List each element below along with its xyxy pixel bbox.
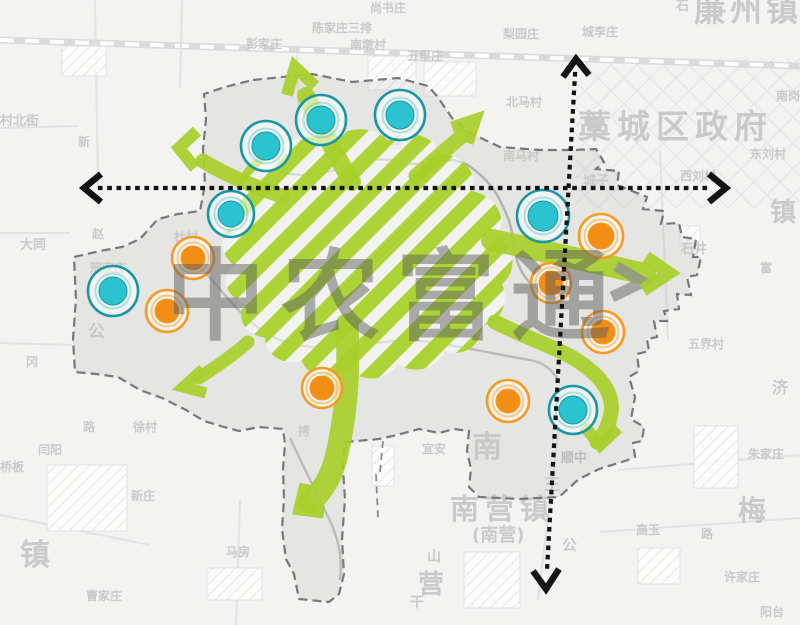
map-label: 新庄 [131,490,155,503]
map-label: 干 [410,596,424,611]
map-label: 五界村 [688,338,724,351]
map-label: 南岗 [776,90,800,103]
map-label: 阳台 [760,606,784,619]
map-label: 市民 [378,138,402,151]
map-label: 马房 [226,546,250,559]
map-label: 梅 [738,496,766,525]
map-label: 南墩村 [350,39,386,52]
map-label: (南营) [472,527,524,546]
map-label: 宜安 [422,443,446,456]
watermark: 中农富通 [166,248,626,347]
concept-plan-diagram: 藁城区政府廉州镇南营镇(南营)梅镇镇营南王济公公山干尚书庄陈家庄三排南墩村五里庄… [0,0,800,625]
map-label: 石井 [681,243,707,257]
map-label: 路 [83,421,95,434]
map-label: 桥板 [0,461,24,474]
map-label: 山 [427,550,441,565]
map-label: 王 [544,477,560,494]
map-label: 拷 [298,425,310,438]
map-label: 镇 [770,200,796,227]
map-label: 徐村 [133,421,157,434]
map-label: 五里庄 [407,50,443,63]
map-label: 朱家庄 [748,448,784,461]
map-label: 石 [676,0,689,14]
map-label: 闫阳 [38,444,62,457]
map-label: 公 [562,538,577,554]
map-label: 邢家庄 [90,262,126,275]
map-label: 镇 [20,540,50,572]
map-label: 尚书庄 [370,2,406,15]
map-label: 梨园庄 [503,28,539,41]
map-label: 顺中 [561,452,587,466]
map-label: 富 [760,262,772,275]
map-label: 彭家庄 [246,38,282,51]
map-label: 曹家庄 [86,590,122,603]
map-label: 济 [772,380,788,397]
map-label: 城李庄 [582,26,618,39]
map-label: 藁城区政府 [578,110,773,145]
map-label: 许家庄 [724,571,760,584]
map-label: 西刘村 [680,170,716,183]
map-label: 新 [78,136,90,149]
map-label: 南马村 [503,150,539,163]
map-label: 东刘村 [750,148,786,161]
map-label: 村北街 [0,115,39,129]
map-label: 城子 [583,175,609,189]
map-label: 南 [472,432,502,464]
map-label: 冈 [26,356,38,369]
map-label: 路 [701,528,713,541]
map-label: 廉州镇 [694,0,800,28]
map-label: 高玉 [636,524,660,537]
map-label: 南营镇 [450,494,555,524]
map-label: 陈家庄三排 [312,22,372,35]
map-label: 北马村 [506,96,542,109]
map-label: 公 [88,324,105,342]
map-label: 赵 [92,228,104,241]
map-label: 大同 [20,239,46,253]
map-label: 中颐 [308,141,332,154]
